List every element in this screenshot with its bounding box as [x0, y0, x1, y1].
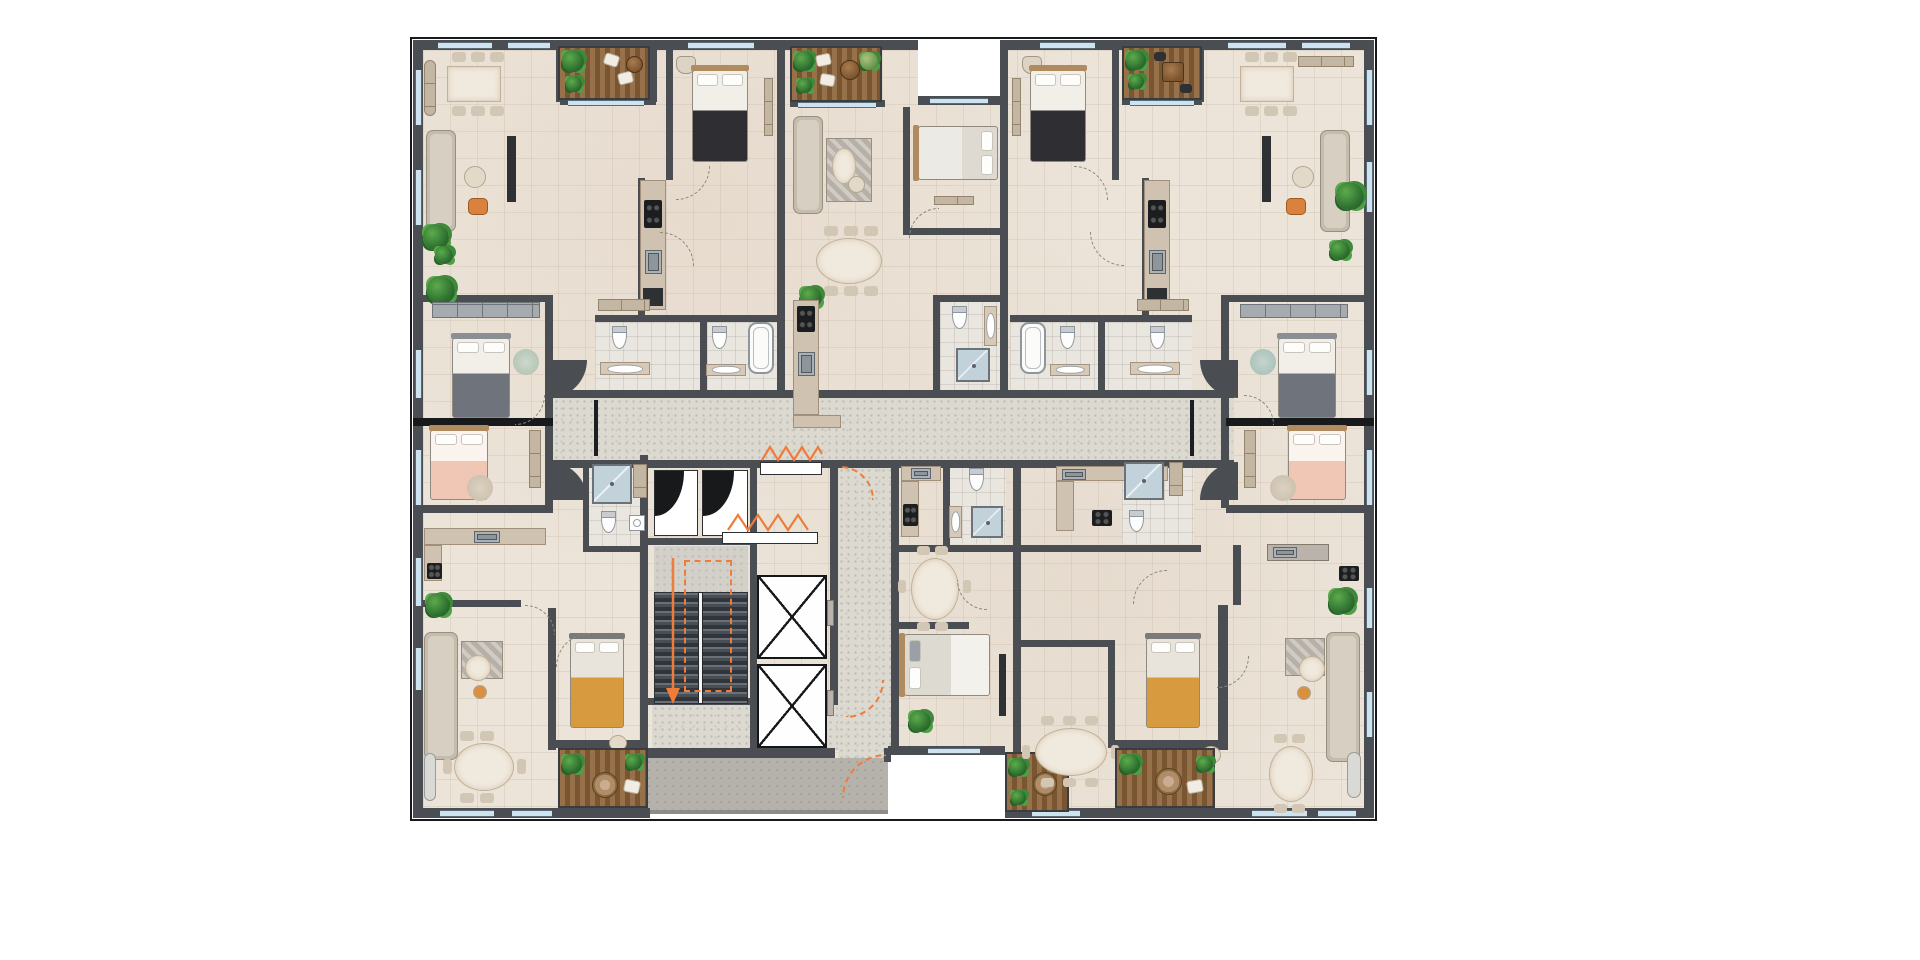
pouf-orange [473, 685, 487, 699]
kitchen-base [1056, 481, 1074, 531]
door-swing [515, 395, 545, 425]
window [1366, 692, 1373, 737]
dining-chairs [1274, 804, 1287, 813]
plant [562, 50, 584, 72]
bed-grey [452, 338, 510, 418]
vanity [949, 506, 962, 538]
hall-cabinet [1137, 299, 1189, 311]
door-swing [909, 208, 939, 238]
pillow [461, 434, 483, 445]
door-swing [1244, 395, 1274, 425]
coffee-table [1299, 656, 1325, 682]
pillow [1035, 74, 1056, 86]
elevator-shaft [757, 664, 827, 748]
door-swing [525, 605, 555, 635]
bench [934, 196, 974, 205]
plant [1129, 74, 1144, 89]
toilet [712, 328, 727, 349]
pillow [981, 155, 993, 175]
door-swing [676, 166, 710, 200]
toilet [1150, 328, 1165, 349]
double-bed [1030, 70, 1086, 162]
kitchen-sink [1149, 250, 1166, 274]
dining-chairs [460, 793, 474, 803]
dining-chairs [917, 546, 930, 555]
rug-round [1250, 349, 1276, 375]
rug-round [467, 475, 493, 501]
sofa [426, 130, 456, 232]
pillow [909, 667, 921, 689]
plant [1330, 240, 1350, 260]
unit-bottom-centre [899, 462, 1013, 748]
kitchen-sink [474, 531, 500, 543]
bench [529, 430, 541, 488]
door-swing [1090, 232, 1124, 266]
pillow [1175, 642, 1195, 653]
terrace-deck [1115, 748, 1215, 808]
door-swing [556, 633, 590, 667]
dining-chairs [452, 106, 466, 116]
toilet [1129, 512, 1144, 532]
pillow [483, 342, 505, 353]
elevator-shaft [757, 575, 827, 659]
hall-cabinet [598, 299, 650, 311]
sofa [1326, 632, 1360, 762]
double-bed [692, 70, 748, 162]
plant [1120, 754, 1140, 774]
door-swing [660, 232, 694, 266]
plant [435, 246, 453, 264]
bed-yellow [1146, 638, 1200, 728]
shower [971, 506, 1003, 538]
wardrobe [432, 304, 540, 318]
door-swing [1217, 656, 1249, 688]
cooktop [903, 504, 918, 526]
smoke-vent-bar [722, 532, 818, 544]
plant [1329, 588, 1355, 614]
window [1318, 810, 1356, 817]
cooktop [427, 563, 442, 579]
pillow [457, 342, 479, 353]
plant [626, 754, 642, 770]
pillow [981, 131, 993, 151]
dresser [1012, 78, 1021, 136]
dining-chair [898, 580, 906, 593]
plant [1336, 182, 1364, 210]
cooktop [1092, 510, 1112, 526]
wardrobe [1240, 304, 1348, 318]
terrace-deck [558, 748, 648, 808]
plant [566, 76, 582, 92]
cooktop [644, 200, 662, 228]
door-swing [1074, 166, 1108, 200]
accent-chair-orange [468, 198, 488, 215]
bed-white [904, 634, 990, 696]
sofa [1320, 130, 1350, 232]
bed-grey [1278, 338, 1336, 418]
deck-table [1162, 62, 1184, 82]
pillow [599, 642, 619, 653]
window [1366, 70, 1373, 125]
plant [1197, 756, 1213, 772]
smoke-vent-bar [760, 462, 822, 475]
shower [956, 348, 990, 382]
smoke-vent-zigzag [726, 512, 816, 532]
pillow [1309, 342, 1331, 353]
vanity [600, 362, 650, 375]
pillow [1283, 342, 1305, 353]
dining-table [1240, 66, 1294, 102]
vent-shaft [654, 470, 698, 536]
kitchen-sink-2 [1273, 547, 1297, 558]
elevator-door [827, 600, 834, 626]
double-bed-white [918, 126, 998, 180]
deck-chair [1180, 84, 1192, 93]
terrace-deck [790, 46, 882, 102]
deck-table [840, 60, 860, 80]
window [440, 810, 494, 817]
deck-cushion [1186, 779, 1204, 795]
dining-table [447, 66, 501, 102]
window-bench [424, 753, 436, 801]
dining-chairs [1274, 734, 1287, 743]
deck-table [626, 56, 643, 73]
vanity [984, 306, 997, 346]
smoke-vent-zigzag [760, 444, 824, 462]
toilet [969, 470, 984, 491]
terrace-deck [558, 46, 650, 100]
window [512, 810, 552, 817]
deck-cushion [623, 778, 641, 794]
dresser [764, 78, 773, 136]
pouf-orange [1297, 686, 1311, 700]
deck-cushion [815, 53, 832, 68]
tv-console [1262, 136, 1271, 202]
bathtub [1020, 322, 1046, 374]
dining-chairs [1041, 778, 1054, 787]
plant [426, 593, 450, 617]
plant [562, 754, 582, 774]
cooktop-2 [1339, 566, 1359, 581]
kitchen-sink [1062, 469, 1086, 480]
kitchen-sink [911, 468, 931, 479]
bath-cabinet [633, 464, 647, 498]
dining-chairs [824, 226, 838, 236]
dining-table-oval [1269, 746, 1313, 802]
dining-table-oval [911, 558, 959, 620]
escape-route-box [684, 560, 732, 692]
pillow [909, 640, 921, 662]
pillow [697, 74, 718, 86]
window-bench [1347, 752, 1361, 798]
vanity [706, 364, 746, 376]
deck-cushion [819, 73, 836, 87]
escape-arrow [660, 556, 686, 706]
plant [794, 51, 814, 71]
toilet [612, 328, 627, 349]
plant-flowering [860, 52, 878, 70]
dining-chairs [824, 286, 838, 296]
dining-chairs [460, 731, 474, 741]
coffee-table [1292, 166, 1314, 188]
sideboard [1298, 56, 1354, 67]
dining-chair [1022, 745, 1030, 759]
pillow [722, 74, 743, 86]
cooktop [1148, 200, 1166, 228]
elevator-door [827, 690, 834, 716]
dining-chairs [1041, 716, 1054, 725]
dining-chair [443, 759, 452, 774]
dining-table-oval [454, 743, 514, 791]
plant [797, 78, 812, 93]
tv-panel [999, 654, 1006, 716]
kitchen-sink [798, 352, 815, 376]
window [1366, 588, 1373, 628]
toilet [952, 308, 967, 329]
terrace-deck [1122, 46, 1202, 100]
dining-table-8 [1035, 728, 1107, 776]
sideboard [424, 60, 436, 116]
coffee-table [465, 655, 491, 681]
shower [1124, 462, 1164, 500]
bedrooms-mid-left [421, 295, 553, 513]
dining-chairs [917, 622, 930, 631]
window [1366, 162, 1373, 212]
washer [629, 515, 645, 531]
dining-chairs [452, 52, 466, 62]
plant [909, 710, 931, 732]
pouf [848, 176, 865, 193]
rug-round [513, 349, 539, 375]
deck-parasol [592, 772, 618, 798]
cooktop [797, 306, 815, 332]
dining-chairs [1245, 106, 1259, 116]
window [928, 748, 980, 754]
bathtub [748, 322, 774, 374]
bath-cabinet [1169, 462, 1183, 496]
pillow [1060, 74, 1081, 86]
accent-chair-orange [1286, 198, 1306, 215]
tv-console [507, 136, 516, 202]
dining-table-oval [816, 238, 882, 284]
floor-plan-canvas [0, 0, 1920, 960]
plant [1126, 50, 1146, 70]
deck-chair [1154, 52, 1166, 61]
pillow [1319, 434, 1341, 445]
dining-chairs [1245, 52, 1259, 62]
kitchen-base [793, 415, 841, 428]
toilet [1060, 328, 1075, 349]
door-swing [1133, 570, 1167, 604]
coffee-table [464, 166, 486, 188]
vanity [1130, 362, 1180, 375]
dining-chair [517, 759, 526, 774]
shower [592, 464, 632, 504]
vanity [1050, 364, 1090, 376]
pillow [1151, 642, 1171, 653]
toilet [601, 513, 616, 533]
sofa [793, 116, 823, 214]
deck-cushion [603, 52, 621, 68]
sofa [424, 632, 458, 760]
pillow [1293, 434, 1315, 445]
door-swing [957, 580, 987, 610]
deck-parasol [1155, 768, 1182, 795]
pillow [435, 434, 457, 445]
